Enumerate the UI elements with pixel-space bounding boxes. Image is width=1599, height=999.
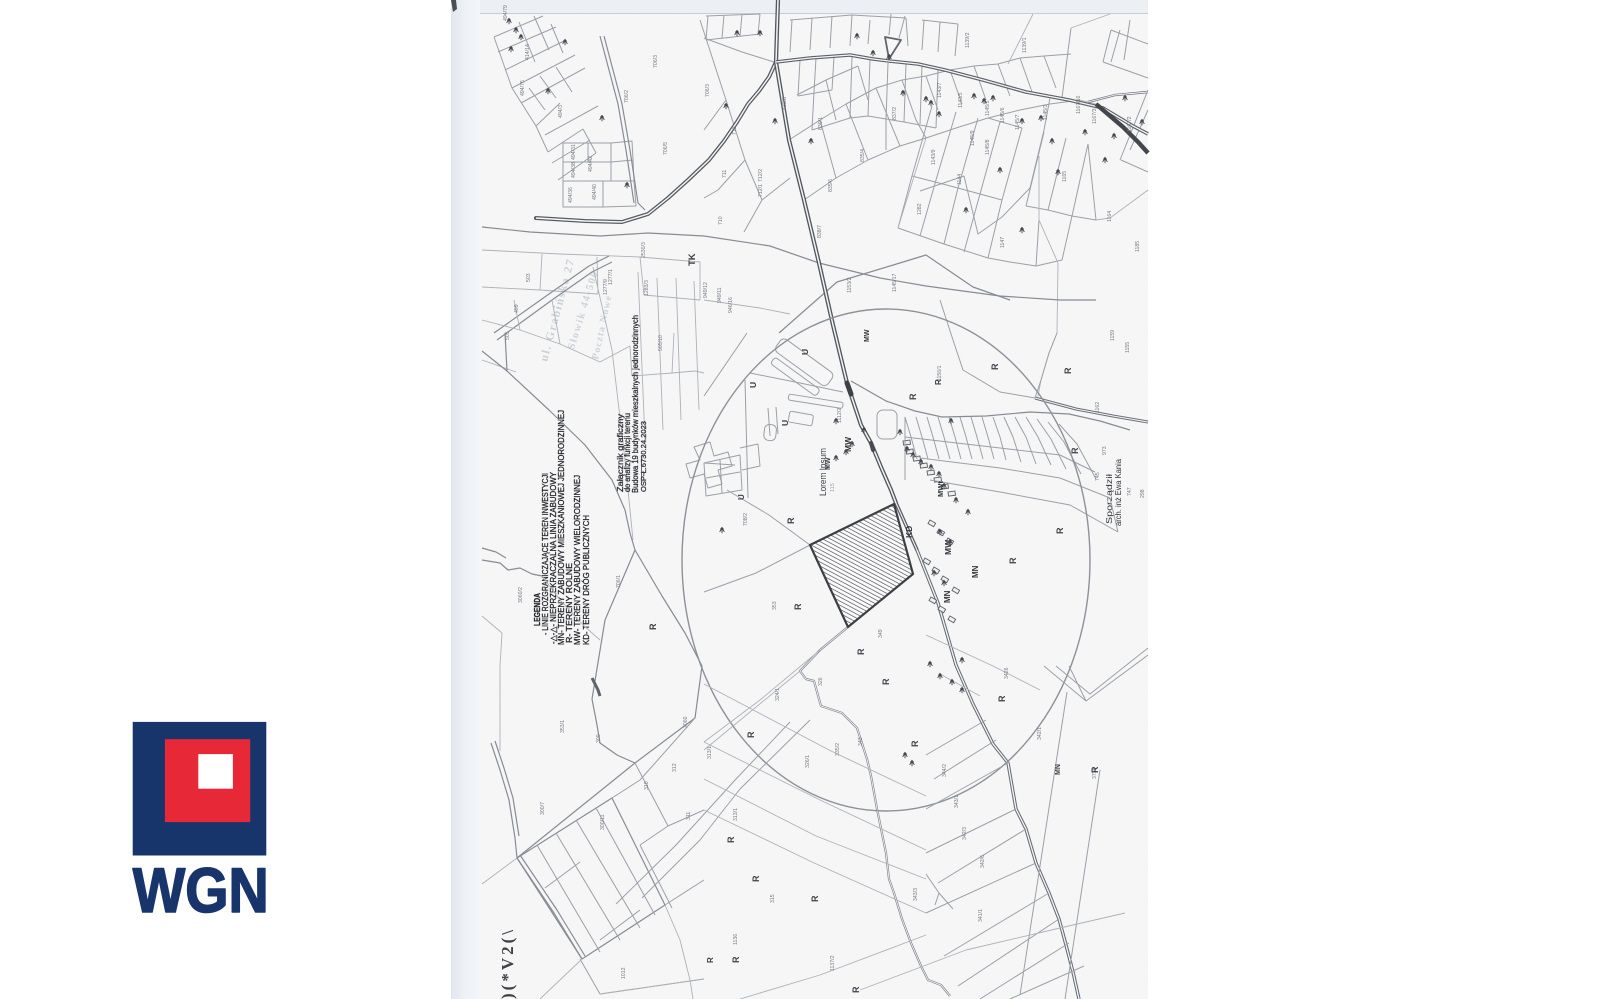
svg-text:324/1: 324/1 (775, 688, 781, 701)
svg-text:Lorem Ipsum: Lorem Ipsum (818, 448, 829, 496)
svg-text:R: R (1090, 766, 1100, 773)
svg-text:R: R (990, 363, 1000, 370)
svg-text:1162: 1162 (1095, 402, 1101, 413)
svg-text:499: 499 (514, 304, 520, 313)
svg-text:1145/3: 1145/3 (1043, 104, 1049, 120)
svg-text:712/2: 712/2 (758, 169, 764, 182)
svg-text:315: 315 (770, 894, 776, 903)
svg-text:713: 713 (732, 126, 738, 135)
svg-text:115: 115 (830, 483, 836, 492)
svg-text:494/42: 494/42 (588, 156, 594, 172)
svg-text:300: 300 (596, 734, 602, 743)
svg-text:1143/9: 1143/9 (931, 149, 937, 165)
svg-text:1159: 1159 (1110, 330, 1116, 341)
svg-text:706/2: 706/2 (624, 90, 630, 103)
svg-text:R: R (793, 603, 803, 610)
svg-text:313/1: 313/1 (707, 746, 713, 759)
svg-text:1139/2: 1139/2 (965, 32, 971, 48)
svg-text:1137/2: 1137/2 (830, 955, 836, 971)
svg-text:OSP-Ł.6730.24.2023: OSP-Ł.6730.24.2023 (639, 421, 648, 492)
svg-text:494/31: 494/31 (571, 144, 577, 160)
svg-text:326: 326 (818, 677, 824, 686)
svg-text:835/4: 835/4 (860, 149, 866, 162)
svg-text:R: R (1063, 367, 1073, 374)
svg-text:1139/1: 1139/1 (1022, 37, 1028, 53)
svg-text:1277/9: 1277/9 (603, 279, 609, 295)
svg-text:R: R (910, 740, 920, 747)
svg-text:R: R (851, 986, 861, 993)
svg-text:300/7: 300/7 (540, 802, 546, 815)
svg-text:494/40: 494/40 (592, 184, 598, 200)
svg-text:1147: 1147 (1000, 237, 1006, 248)
svg-text:arch. inż Ewa Kania: arch. inż Ewa Kania (1114, 458, 1123, 526)
svg-text:326/1: 326/1 (805, 755, 811, 768)
svg-text:349: 349 (878, 629, 884, 638)
svg-text:R: R (908, 393, 918, 400)
svg-text:300/11: 300/11 (600, 814, 606, 830)
svg-text:R: R (810, 895, 820, 902)
svg-text:)(*V2(\: )(*V2(\ (498, 927, 517, 999)
svg-text:341/1: 341/1 (978, 909, 984, 922)
svg-text:Sporządził: Sporządził (1105, 474, 1114, 524)
svg-text:1156/1: 1156/1 (937, 365, 943, 381)
svg-text:R: R (1008, 557, 1018, 564)
svg-text:505: 505 (505, 331, 511, 340)
svg-text:344/2: 344/2 (942, 764, 948, 777)
svg-text:MW: MW (825, 457, 832, 470)
svg-text:1167/3: 1167/3 (1092, 108, 1098, 124)
svg-text:R: R (997, 695, 1007, 702)
svg-text:1283/3: 1283/3 (644, 280, 650, 296)
svg-text:1145/6: 1145/6 (1000, 107, 1006, 123)
svg-text:R: R (856, 648, 866, 655)
svg-text:503: 503 (526, 273, 532, 282)
svg-text:KD: KD (904, 526, 914, 538)
svg-text:494/79: 494/79 (503, 5, 509, 21)
svg-text:MN: MN (943, 590, 952, 603)
svg-text:311: 311 (686, 812, 692, 820)
svg-text:1282: 1282 (917, 203, 923, 215)
svg-text:494/75: 494/75 (520, 80, 526, 96)
svg-text:835/6: 835/6 (828, 179, 834, 192)
svg-text:TK: TK (687, 253, 698, 266)
svg-text:R: R (881, 678, 891, 685)
svg-text:1165: 1165 (1062, 171, 1068, 182)
svg-text:R: R (731, 956, 741, 963)
svg-text:R: R (746, 731, 756, 738)
svg-text:U: U (748, 382, 758, 388)
svg-text:711: 711 (722, 170, 728, 178)
svg-text:494/3: 494/3 (558, 105, 564, 118)
svg-text:R: R (726, 836, 736, 843)
svg-text:1145/17: 1145/17 (892, 274, 898, 292)
svg-text:1167/10: 1167/10 (1076, 96, 1082, 114)
svg-text:U: U (780, 420, 790, 426)
svg-text:2060: 2060 (683, 716, 689, 728)
svg-text:342/1: 342/1 (1037, 727, 1043, 740)
svg-text:U: U (800, 349, 810, 355)
svg-text:353: 353 (772, 601, 778, 610)
svg-text:1167/2: 1167/2 (1127, 116, 1133, 132)
svg-text:343/3: 343/3 (913, 888, 919, 901)
svg-text:830/1: 830/1 (818, 117, 824, 130)
svg-text:1185: 1185 (1135, 241, 1141, 252)
svg-text:MN: MN (971, 565, 980, 578)
svg-text:494/38: 494/38 (571, 162, 577, 178)
svg-text:R: R (648, 623, 658, 630)
svg-text:342/6: 342/6 (980, 855, 986, 868)
svg-text:353/1: 353/1 (560, 720, 566, 733)
svg-text:505/10: 505/10 (658, 335, 664, 351)
svg-text:3426: 3426 (1004, 667, 1010, 679)
svg-text:R: R (706, 957, 715, 963)
svg-text:708/2: 708/2 (743, 513, 749, 526)
svg-text:973: 973 (1102, 446, 1108, 455)
svg-text:R: R (934, 379, 943, 385)
svg-text:1012: 1012 (621, 967, 627, 979)
svg-text:949/11: 949/11 (717, 287, 723, 303)
svg-text:706/3: 706/3 (653, 55, 659, 68)
svg-text:706/1: 706/1 (616, 575, 622, 588)
svg-text:1143/7: 1143/7 (937, 82, 943, 98)
svg-text:1164: 1164 (1107, 211, 1113, 222)
svg-text:1112/2: 1112/2 (837, 408, 843, 423)
svg-text:MW: MW (864, 329, 871, 342)
svg-text:747: 747 (1127, 487, 1133, 496)
svg-text:312: 312 (672, 763, 678, 772)
svg-text:712/1: 712/1 (758, 184, 764, 197)
svg-text:298: 298 (1140, 489, 1146, 498)
svg-text:R: R (786, 517, 796, 524)
svg-text:833/8: 833/8 (782, 97, 788, 110)
svg-text:342/3: 342/3 (962, 827, 968, 840)
svg-text:837/2: 837/2 (892, 107, 898, 120)
svg-text:313/1: 313/1 (733, 808, 739, 821)
svg-text:1153/2: 1153/2 (847, 277, 853, 293)
svg-text:946/16: 946/16 (728, 297, 734, 313)
svg-text:706/3: 706/3 (705, 84, 711, 97)
svg-text:710: 710 (718, 216, 724, 225)
svg-text:343/1: 343/1 (954, 795, 960, 808)
svg-text:1145/8: 1145/8 (985, 139, 991, 155)
svg-text:R: R (1055, 527, 1065, 534)
svg-text:1144: 1144 (957, 174, 963, 185)
svg-text:MN: MN (1055, 764, 1062, 775)
svg-text:U: U (737, 494, 746, 500)
svg-text:R: R (751, 875, 761, 882)
svg-text:838/7: 838/7 (817, 225, 823, 238)
svg-text:R: R (1070, 447, 1080, 454)
svg-text:1136: 1136 (733, 934, 739, 945)
svg-text:1145/9: 1145/9 (970, 130, 976, 146)
svg-text:1143/5: 1143/5 (958, 92, 964, 108)
svg-text:494/36: 494/36 (568, 187, 574, 203)
svg-text:310: 310 (644, 781, 650, 790)
svg-text:KD- TERENY DRÓG PUBLICZNYCH: KD- TERENY DRÓG PUBLICZNYCH (581, 515, 591, 645)
svg-text:745: 745 (1095, 472, 1101, 481)
svg-text:343: 343 (858, 737, 864, 746)
svg-text:1155: 1155 (1125, 342, 1131, 353)
svg-text:WGN: WGN (133, 856, 269, 926)
svg-text:949/12: 949/12 (703, 282, 709, 298)
svg-text:2530/3: 2530/3 (641, 242, 647, 258)
svg-text:335/2: 335/2 (835, 743, 841, 756)
svg-text:706/5: 706/5 (663, 142, 669, 155)
svg-text:3060/2: 3060/2 (518, 587, 524, 603)
svg-text:414/14: 414/14 (525, 44, 531, 60)
